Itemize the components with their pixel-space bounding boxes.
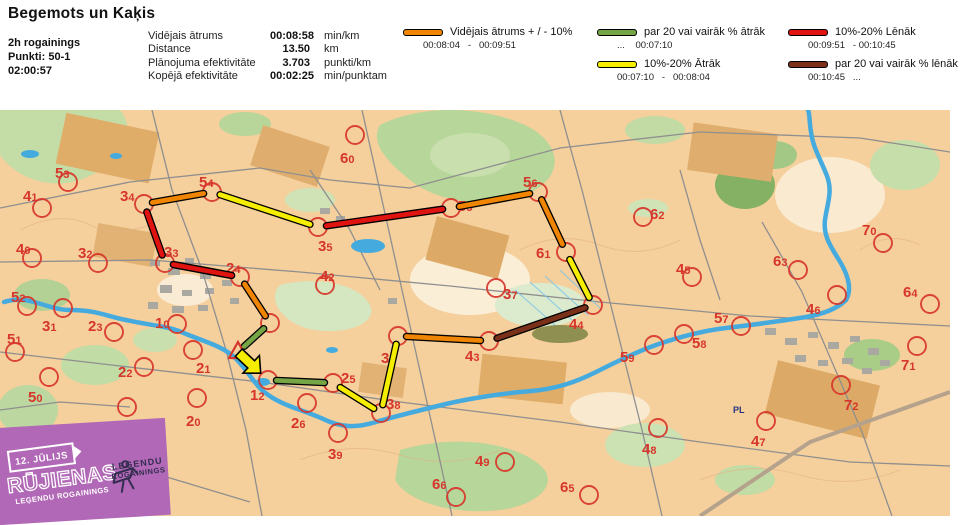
control-58: 58 xyxy=(675,325,706,352)
rogaining-figure-icon xyxy=(109,458,143,496)
legend-swatch-slow20 xyxy=(788,61,828,68)
control-47: 47 xyxy=(751,412,775,450)
banner-date: 12. JŪLIJS xyxy=(15,451,69,469)
legend-range: ... 00:07:10 xyxy=(617,40,765,51)
route-map: 1012202122232425263031323334353637383940… xyxy=(0,110,950,516)
control-22: 22 xyxy=(118,358,153,381)
legend-label: 10%-20% Ātrāk xyxy=(644,58,720,70)
control-number: 43 xyxy=(465,348,479,365)
legend-label: Vidējais ātrums + / - 10% xyxy=(450,26,572,38)
legend-range: 00:07:10 - 00:08:04 xyxy=(617,72,720,83)
control-number: 63 xyxy=(773,253,787,270)
control-46: 46 xyxy=(806,286,846,318)
route-leg-25-38 xyxy=(340,388,374,409)
control-number: 20 xyxy=(186,413,200,430)
control-number: 62 xyxy=(650,206,664,223)
control-57: 57 xyxy=(714,310,750,335)
stat-unit: km xyxy=(324,43,339,55)
control-41: 41 xyxy=(23,188,51,217)
control-number: 22 xyxy=(118,364,132,381)
control-number: 25 xyxy=(341,370,355,387)
start-direction-arrow xyxy=(235,349,260,373)
control-45: 45 xyxy=(676,261,701,286)
control-70: 70 xyxy=(862,222,892,252)
control-number: 66 xyxy=(432,476,446,493)
control-number: 72 xyxy=(844,397,858,414)
legend-swatch-fast10 xyxy=(597,61,637,68)
event-format: 2h rogainings xyxy=(8,36,80,50)
banner-logo: LEĢENDU ROGAININGS xyxy=(109,455,167,481)
stat-label: Vidējais ātrums xyxy=(148,30,270,42)
stat-value: 00:08:58 xyxy=(270,30,310,42)
control-number: 71 xyxy=(901,357,915,374)
route-leg-36-43 xyxy=(406,336,480,340)
control-53: 53 xyxy=(55,165,77,191)
route-leg-12-25 xyxy=(276,380,324,382)
control-49: 49 xyxy=(475,453,514,471)
route-leg-56-55 xyxy=(459,194,529,207)
control-number: 53 xyxy=(55,165,69,182)
control-32: 32 xyxy=(78,245,107,272)
control-20: 20 xyxy=(186,389,206,430)
control-60: 60 xyxy=(340,126,364,167)
control-62: 62 xyxy=(634,206,664,226)
control-31: 31 xyxy=(42,299,72,335)
control-number: 70 xyxy=(862,222,876,239)
control-64: 64 xyxy=(903,284,939,313)
control-number: 60 xyxy=(340,150,354,167)
control-26: 26 xyxy=(291,394,316,432)
control-number: 56 xyxy=(523,174,537,191)
stats-table: Vidējais ātrums 00:08:58 min/km Distance… xyxy=(148,29,387,83)
control-number: 57 xyxy=(714,310,728,327)
control-number: 61 xyxy=(536,245,550,262)
control-number: 31 xyxy=(42,318,56,335)
stat-label: Plānojuma efektivitāte xyxy=(148,57,270,69)
event-banner: 12. JŪLIJS RŪJIENAS LEĢENDU ROGAININGS L… xyxy=(0,418,171,525)
control-63: 63 xyxy=(773,253,807,279)
control-10: 10 xyxy=(155,315,186,333)
route-leg-35-54 xyxy=(220,195,310,225)
stat-unit: min/km xyxy=(324,30,359,42)
control-number: 42 xyxy=(320,268,334,285)
control-52: 52 xyxy=(11,289,36,315)
control-number: 38 xyxy=(386,396,400,413)
control-number: 39 xyxy=(328,446,342,463)
control-66: 66 xyxy=(432,476,465,506)
route-leg-34-33 xyxy=(147,212,162,255)
legend-swatch-fast20 xyxy=(597,29,637,36)
stat-unit: min/punktam xyxy=(324,70,387,82)
control-number: 32 xyxy=(78,245,92,262)
legend-label: par 20 vai vairāk % lēnāk xyxy=(835,58,958,70)
control-number: 52 xyxy=(11,289,25,306)
control-number: 26 xyxy=(291,415,305,432)
banner-text-block: 12. JŪLIJS RŪJIENAS LEĢENDU ROGAININGS xyxy=(3,438,113,507)
stat-unit: punkti/km xyxy=(324,57,371,69)
legend-range: 00:09:51 - 00:10:45 xyxy=(808,40,916,51)
control-number: 49 xyxy=(475,453,489,470)
control-39: 39 xyxy=(328,424,347,463)
control-number: 51 xyxy=(7,331,21,348)
stat-row-distance: Distance 13.50 km xyxy=(148,43,387,57)
control-number: 45 xyxy=(676,261,690,278)
route-leg-54-34 xyxy=(152,193,203,202)
control-number: 48 xyxy=(642,441,656,458)
control-37: 37 xyxy=(487,279,517,303)
control-48: 48 xyxy=(642,419,667,458)
stat-row-total-efficiency: Kopējā efektivitāte 00:02:25 min/punktam xyxy=(148,70,387,84)
legend-item-average: Vidējais ātrums + / - 10% 00:08:04 - 00:… xyxy=(403,26,572,51)
stat-value: 00:02:25 xyxy=(270,70,310,82)
control-number: 47 xyxy=(751,433,765,450)
legend-item-slow20: par 20 vai vairāk % lēnāk 00:10:45 ... xyxy=(788,58,958,83)
control-number: 41 xyxy=(23,188,37,205)
event-time: 02:00:57 xyxy=(8,64,80,78)
legend-range: 00:08:04 - 00:09:51 xyxy=(423,40,572,51)
control-50: 50 xyxy=(28,368,58,406)
control-number: 35 xyxy=(318,238,332,255)
control-51: 51 xyxy=(6,331,24,361)
legend-range: 00:10:45 ... xyxy=(808,72,958,83)
control-number: 10 xyxy=(155,315,169,332)
legend-item-fast10: 10%-20% Ātrāk 00:07:10 - 00:08:04 xyxy=(597,58,720,83)
control-12: 12 xyxy=(250,371,277,404)
control-number: 21 xyxy=(196,360,210,377)
control-40: 40 xyxy=(16,241,41,267)
route-leg-44-61 xyxy=(570,260,589,298)
control-number: 46 xyxy=(806,301,820,318)
stat-value: 13.50 xyxy=(270,43,310,55)
legend-swatch-slow10 xyxy=(788,29,828,36)
control-number: 58 xyxy=(692,335,706,352)
control-number: 33 xyxy=(164,244,178,261)
legend-label: par 20 vai vairāk % ātrāk xyxy=(644,26,765,38)
control-42: 42 xyxy=(316,268,334,294)
legend-label: 10%-20% Lēnāk xyxy=(835,26,916,38)
control-number: 40 xyxy=(16,241,30,258)
control-number: 50 xyxy=(28,389,42,406)
route-leg-24-11 xyxy=(245,284,266,316)
control-number: 34 xyxy=(120,188,135,205)
event-info: 2h rogainings Punkti: 50-1 02:00:57 xyxy=(8,36,80,78)
control-72: 72 xyxy=(832,376,858,414)
stat-row-avg-pace: Vidējais ātrums 00:08:58 min/km xyxy=(148,29,387,43)
control-number: 54 xyxy=(199,174,214,191)
route-leg-33-24 xyxy=(173,265,231,276)
control-number: 12 xyxy=(250,387,264,404)
control-65: 65 xyxy=(560,479,598,504)
control-number: 59 xyxy=(620,349,634,366)
control-59: 59 xyxy=(620,336,663,366)
control-number: 65 xyxy=(560,479,574,496)
stat-row-plan-efficiency: Plānojuma efektivitāte 3.703 punkti/km xyxy=(148,56,387,70)
control-23: 23 xyxy=(88,318,123,341)
stat-label: Kopējā efektivitāte xyxy=(148,70,270,82)
event-points: Punkti: 50-1 xyxy=(8,50,80,64)
control-71: 71 xyxy=(901,337,926,374)
control-number: 44 xyxy=(569,316,584,333)
page-title: Begemots un Kaķis xyxy=(8,5,155,23)
map-feature-label: PL xyxy=(733,405,745,415)
route-leg-55-35 xyxy=(326,209,442,226)
legend-swatch-average xyxy=(403,29,443,36)
control-number: 37 xyxy=(503,286,517,303)
control-number: 64 xyxy=(903,284,918,301)
route-leg-11-start xyxy=(244,329,263,347)
route-leg-61-56 xyxy=(542,200,563,245)
legend-item-fast20: par 20 vai vairāk % ātrāk ... 00:07:10 xyxy=(597,26,765,51)
control-number: 23 xyxy=(88,318,102,335)
stat-value: 3.703 xyxy=(270,57,310,69)
stat-label: Distance xyxy=(148,43,270,55)
legend-item-slow10: 10%-20% Lēnāk 00:09:51 - 00:10:45 xyxy=(788,26,916,51)
route-legs xyxy=(147,193,589,408)
control-21: 21 xyxy=(184,341,210,377)
